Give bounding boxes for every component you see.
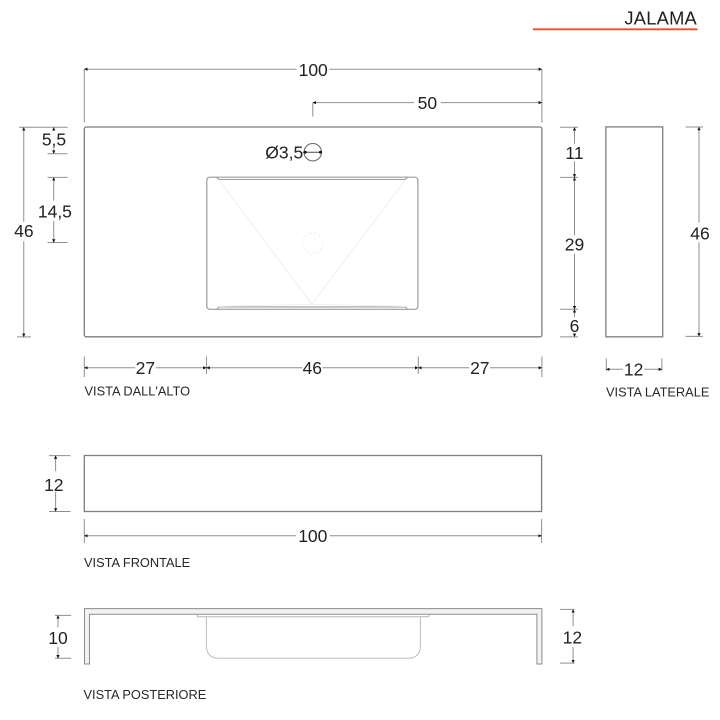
svg-text:VISTA LATERALE: VISTA LATERALE — [606, 385, 709, 400]
svg-text:11: 11 — [565, 143, 583, 163]
svg-text:14,5: 14,5 — [38, 202, 72, 222]
svg-text:12: 12 — [44, 475, 63, 495]
svg-text:VISTA DALL'ALTO: VISTA DALL'ALTO — [85, 383, 191, 398]
svg-text:100: 100 — [299, 60, 328, 80]
svg-text:6: 6 — [570, 316, 580, 336]
svg-text:12: 12 — [563, 628, 582, 648]
svg-text:12: 12 — [624, 360, 643, 380]
svg-text:VISTA FRONTALE: VISTA FRONTALE — [84, 555, 190, 570]
svg-text:46: 46 — [303, 358, 322, 378]
svg-text:Ø3,5: Ø3,5 — [265, 143, 303, 163]
svg-text:46: 46 — [14, 221, 33, 241]
svg-text:5,5: 5,5 — [42, 130, 66, 150]
svg-text:100: 100 — [298, 526, 327, 546]
svg-text:JALAMA: JALAMA — [624, 8, 697, 29]
svg-text:10: 10 — [48, 628, 68, 648]
svg-text:50: 50 — [418, 93, 438, 113]
svg-text:46: 46 — [690, 224, 709, 244]
svg-text:VISTA POSTERIORE: VISTA POSTERIORE — [84, 687, 207, 702]
svg-text:27: 27 — [136, 358, 155, 378]
svg-text:29: 29 — [565, 234, 584, 254]
svg-text:27: 27 — [470, 358, 489, 378]
